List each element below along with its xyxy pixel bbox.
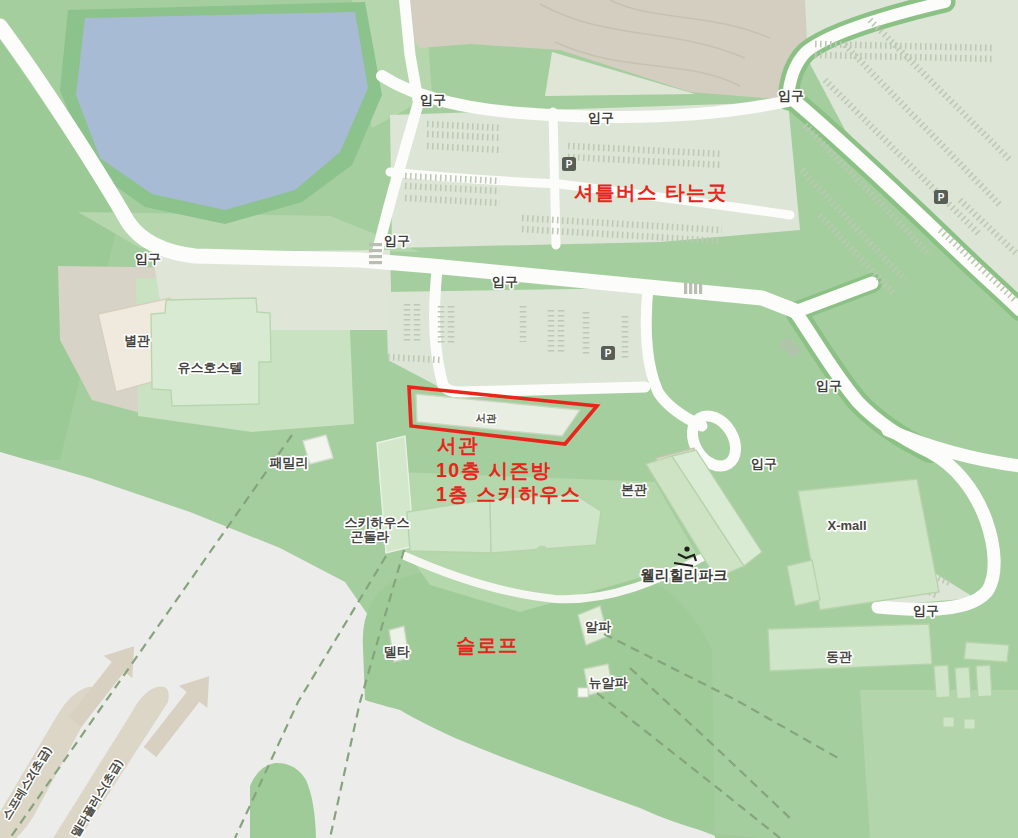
- donggwan-label: 동관: [826, 649, 852, 664]
- small-building-3: [976, 665, 992, 697]
- alpha-label: 알파: [585, 619, 612, 634]
- small-building-1: [934, 665, 950, 698]
- parking-icon-1: P: [562, 157, 576, 171]
- skihouse-gondola-label-2: 곤돌라: [351, 529, 390, 544]
- entrance-label: 입구: [384, 233, 410, 248]
- youth-hostel-label: 유스호스텔: [178, 360, 243, 375]
- skihouse-gondola-label-1: 스키하우스: [345, 515, 410, 530]
- resort-map[interactable]: P P P 입구 입구 입구 입구 입구 입구 입구 입구 입구 별관 유스호스…: [0, 0, 1018, 838]
- donggwan-annex: [964, 642, 1009, 662]
- entrance-label: 입구: [492, 274, 518, 289]
- bongwan-label: 본관: [621, 482, 647, 497]
- svg-text:P: P: [566, 159, 573, 170]
- svg-text:P: P: [605, 348, 612, 359]
- slope-annotation: 슬로프: [456, 634, 519, 656]
- xmall-building: [798, 479, 939, 610]
- wellihilli-park-label: 웰리힐리파크: [641, 567, 728, 583]
- shuttle-annotation: 셔틀버스 타는곳: [574, 181, 728, 203]
- entrance-label: 입구: [913, 603, 939, 618]
- svg-text:P: P: [938, 192, 945, 203]
- seogwan-annotation-2: 10층 시즌방: [436, 459, 552, 481]
- southeast-light-green: [860, 690, 1018, 838]
- byeolgwan-label: 별관: [124, 333, 150, 348]
- small-building-4: [943, 717, 954, 727]
- entrance-label: 입구: [778, 88, 804, 103]
- parking-lane-2: [553, 112, 556, 245]
- family-label: 패밀리: [270, 455, 309, 470]
- entrance-label: 입구: [420, 92, 446, 107]
- parking-icon-2: P: [601, 346, 615, 360]
- map-canvas[interactable]: P P P 입구 입구 입구 입구 입구 입구 입구 입구 입구 별관 유스호스…: [0, 0, 1018, 838]
- entrance-label: 입구: [751, 456, 777, 471]
- seogwan-building-label: 서관: [476, 412, 498, 424]
- seogwan-annotation-1: 서관: [437, 434, 479, 456]
- skihouse-notch: [536, 546, 549, 559]
- youth-hostel-building: [151, 298, 271, 406]
- small-building-2: [955, 667, 971, 699]
- entrance-label: 입구: [816, 378, 842, 393]
- parking-middle: [386, 288, 648, 390]
- new-alpha-hut: [578, 688, 588, 697]
- new-alpha-label: 뉴알파: [589, 675, 629, 690]
- seogwan-annotation-3: 1층 스키하우스: [436, 483, 581, 505]
- small-building-5: [964, 719, 975, 729]
- delta-label: 델타: [384, 644, 410, 659]
- entrance-label: 입구: [135, 251, 161, 266]
- parking-icon-3: P: [934, 190, 948, 204]
- xmall-label: X-mall: [827, 518, 866, 533]
- entrance-label: 입구: [588, 110, 614, 125]
